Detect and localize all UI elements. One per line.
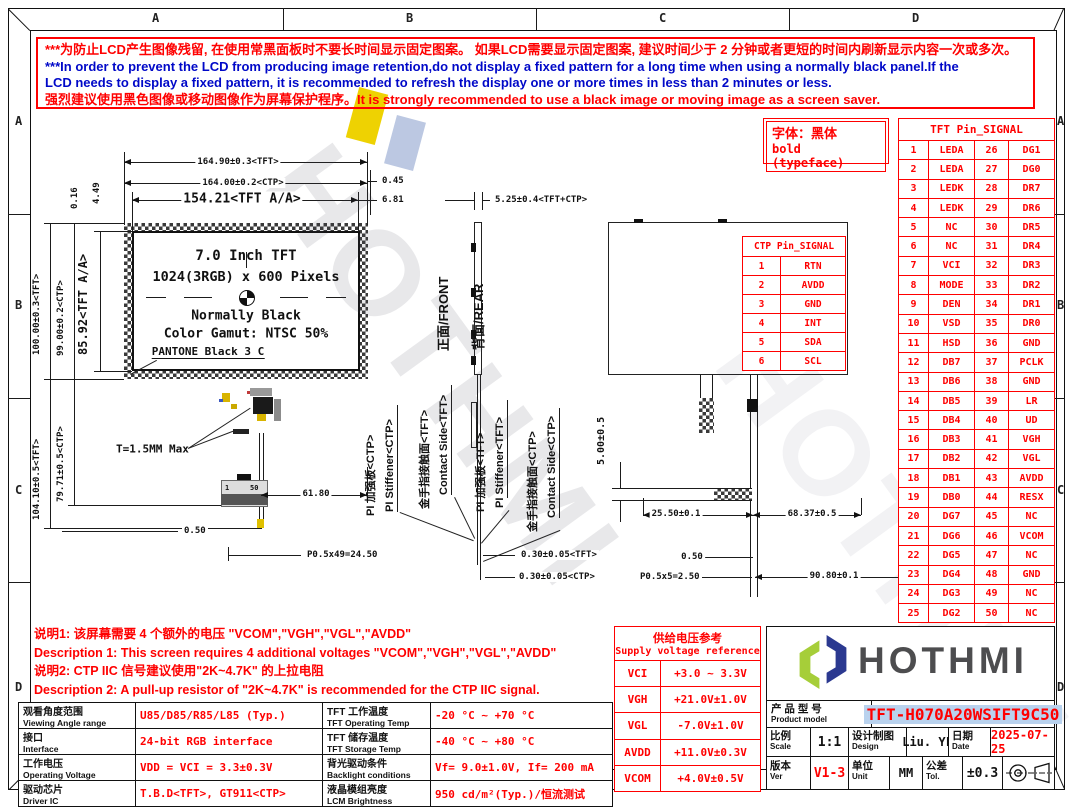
tft-pin-number: 48 [975, 565, 1009, 584]
tft-pin-number: 34 [975, 295, 1009, 314]
spec-value: -40 °C ~ +80 °C [431, 729, 613, 755]
tft-pin-row: 11 HSD 36 GND [899, 333, 1055, 352]
tft-pin-number: 15 [899, 411, 929, 430]
tft-pin-signal: DG7 [929, 507, 975, 526]
center-mark-icon [239, 290, 255, 306]
supply-table-header: 供给电压参考 Supply voltage reference [615, 627, 761, 661]
dim-offset-top1: 4.49 [92, 182, 102, 204]
tft-pin-number: 50 [975, 604, 1009, 623]
tft-pin-number: 22 [899, 546, 929, 565]
tft-pin-signal: GND [1009, 565, 1055, 584]
extension-line [68, 505, 224, 506]
tft-pin-number: 21 [899, 526, 929, 545]
scale-label-cell: 比例 Scale [766, 727, 811, 757]
callout-tft-stiffener-en: PI Stiffener<TFT> [494, 417, 506, 508]
spec-param-en: TFT Operating Temp [327, 718, 426, 728]
scale-value-cell: 1:1 [810, 727, 849, 757]
fpc-component [257, 414, 266, 421]
zone-row-a-left: A [15, 114, 22, 128]
spec-row: 工作电压 Operating Voltage VDD = VCI = 3.3±0… [19, 755, 613, 781]
tft-pin-number: 3 [899, 179, 929, 198]
zone-col-c-top: C [659, 11, 666, 25]
tft-pin-number: 12 [899, 353, 929, 372]
extension-line [44, 379, 124, 380]
tft-pin-row: 7 VCI 32 DR3 [899, 256, 1055, 275]
spec-param-cell: 液晶模组亮度 LCM Brightness [323, 781, 431, 807]
callout-ctp-stiffener-cn: PI 加强板<CTP> [362, 435, 378, 516]
tft-pin-signal: GND [1009, 333, 1055, 352]
tft-pin-number: 23 [899, 565, 929, 584]
supply-row: VGL -7.0V±1.0V [615, 713, 761, 739]
tolerance-value-cell: ±0.3 [962, 756, 1003, 790]
tft-pin-signal: UD [1009, 411, 1055, 430]
pantone-label: PANTONE Black 3 C [152, 345, 265, 359]
spec-param-cell: 接口 Interface [19, 729, 136, 755]
tft-pin-row: 8 MODE 33 DR2 [899, 276, 1055, 295]
tft-pin-number: 30 [975, 218, 1009, 237]
extension-line [44, 528, 262, 529]
spec-row: 驱动芯片 Driver IC T.B.D<TFT>, GT911<CTP> 液晶… [19, 781, 613, 807]
leader-line [705, 557, 753, 558]
typeface-note-cn: 字体：黑体 [772, 123, 880, 142]
tft-pin-number: 35 [975, 314, 1009, 333]
hothmi-brand-text: HOTHMI [858, 640, 1028, 682]
ctp-pin-row: 3 GND [743, 295, 846, 314]
dim-rear-pitch: P0.5x5=2.50 [638, 572, 702, 582]
fpc-tail-mark [257, 519, 264, 528]
note-1-en: Description 1: This screen requires 4 ad… [34, 644, 619, 663]
pin-1-label: 1 [225, 484, 229, 492]
tft-pin-row: 13 DB6 38 GND [899, 372, 1055, 391]
fpc-component [219, 399, 223, 402]
rear-view-nub [718, 219, 727, 223]
tft-pin-row: 16 DB3 41 VGH [899, 430, 1055, 449]
tft-pin-row: 6 NC 31 DR4 [899, 237, 1055, 256]
spec-param-cn: 背光驱动条件 [327, 755, 426, 770]
ctp-pin-row: 5 SDA [743, 333, 846, 352]
date-label-cell: 日期 Date [948, 727, 991, 757]
spec-param-cn: TFT 工作温度 [327, 703, 426, 718]
date-label-cn: 日期 [952, 730, 987, 742]
tolerance-label-cn: 公差 [926, 760, 959, 772]
tft-pin-number: 4 [899, 198, 929, 217]
tft-pin-number: 45 [975, 507, 1009, 526]
tft-pin-signal: DG3 [929, 584, 975, 603]
dim-rear-left: 25.50±0.1 [650, 509, 703, 519]
tft-pin-row: 5 NC 30 DR5 [899, 218, 1055, 237]
zone-col-d-top: D [912, 11, 919, 25]
spec-param-cn: 观看角度范围 [23, 703, 131, 718]
tft-pin-number: 47 [975, 546, 1009, 565]
dim-width-aa: 154.21<TFT A/A> [181, 192, 302, 207]
extension-line [228, 547, 229, 561]
tft-pin-signal: DR1 [1009, 295, 1055, 314]
tft-pin-row: 4 LEDK 29 DR6 [899, 198, 1055, 217]
tft-pin-number: 42 [975, 449, 1009, 468]
dim-stack-thickness: 5.25±0.4<TFT+CTP> [493, 195, 589, 205]
zone-row-b-left: B [15, 298, 22, 312]
spec-param-cell: 观看角度范围 Viewing Angle range [19, 703, 136, 729]
spec-param-cn: TFT 储存温度 [327, 729, 426, 744]
designer-value-cell: Liu. YL [906, 727, 949, 757]
spec-param-cell: 工作电压 Operating Voltage [19, 755, 136, 781]
extension-line [643, 498, 644, 515]
supply-title-en: Supply voltage reference [615, 646, 760, 657]
tft-pin-table-title: TFT Pin_SIGNAL [899, 119, 1055, 141]
tft-pin-number: 31 [975, 237, 1009, 256]
tolerance-label-cell: 公差 Tol. [922, 756, 963, 790]
tft-pin-signal: VGH [1009, 430, 1055, 449]
zone-col-a-top: A [152, 11, 159, 25]
dim-line-height-aa [100, 231, 101, 371]
dim-height-ctp: 99.00±0.2<CTP> [56, 280, 66, 356]
dim-offset-top2: 0.16 [70, 187, 80, 209]
spec-value: -20 °C ~ +70 °C [431, 703, 613, 729]
frame-tick [8, 214, 30, 215]
zone-col-b-top: B [406, 11, 413, 25]
tft-pin-signal: DG0 [1009, 160, 1055, 179]
spec-param-cell: TFT 储存温度 TFT Storage Temp [323, 729, 431, 755]
zone-row-d-right: D [1057, 680, 1064, 694]
tft-fpc-stiffener-bar [714, 488, 752, 500]
note-1-cn: 说明1: 该屏幕需要 4 个额外的电压 "VCOM","VGH","VGL","… [34, 625, 619, 644]
tft-pin-number: 26 [975, 141, 1009, 160]
tft-pin-signal: DB2 [929, 449, 975, 468]
tft-pin-row: 14 DB5 39 LR [899, 391, 1055, 410]
tft-pin-row: 2 LEDA 27 DG0 [899, 160, 1055, 179]
tft-pin-number: 49 [975, 584, 1009, 603]
tft-pin-signal: VCOM [1009, 526, 1055, 545]
supply-rail-value: +3.0 ~ 3.3V [661, 661, 761, 687]
tft-pin-number: 28 [975, 179, 1009, 198]
tft-pin-row: 20 DG7 45 NC [899, 507, 1055, 526]
description-notes: 说明1: 该屏幕需要 4 个额外的电压 "VCOM","VGH","VGL","… [34, 625, 619, 699]
dim-fpc-thickness-tft: 0.30±0.05<TFT> [519, 550, 599, 560]
spec-row: 接口 Interface 24-bit RGB interface TFT 储存… [19, 729, 613, 755]
tft-pin-row: 17 DB2 42 VGL [899, 449, 1055, 468]
dim-line [694, 577, 752, 578]
product-model-label-cn: 产 品 型 号 [771, 703, 867, 715]
panel-resolution-label: 1024(3RGB) x 600 Pixels [153, 269, 340, 285]
tft-pin-signal: HSD [929, 333, 975, 352]
thickness-label: T=1.5MM Max [114, 443, 191, 456]
tft-pin-number: 6 [899, 237, 929, 256]
tft-pin-signal: PCLK [1009, 353, 1055, 372]
supply-rail-value: +21.0V±1.0V [661, 687, 761, 713]
tft-pin-signal: DEN [929, 295, 975, 314]
tft-pin-signal: DR4 [1009, 237, 1055, 256]
tft-pin-number: 39 [975, 391, 1009, 410]
tft-pin-number: 25 [899, 604, 929, 623]
tft-pin-signal: DR2 [1009, 276, 1055, 295]
tft-pin-signal: NC [929, 237, 975, 256]
rear-view-nub [634, 219, 643, 223]
dim-fpc-length: 61.80 [300, 489, 331, 499]
fpc-component [250, 388, 272, 396]
spec-param-en: Operating Voltage [23, 770, 131, 780]
design-label-cell: 设计制图 Design [848, 727, 907, 757]
centerline-dash [184, 297, 212, 298]
extension-line [482, 192, 483, 210]
spec-param-cell: 驱动芯片 Driver IC [19, 781, 136, 807]
product-model-label-en: Product model [771, 715, 867, 724]
retention-warning-box: ***为防止LCD产生图像残留, 在使用常黑面板时不要长时间显示固定图案。 如果… [36, 37, 1035, 109]
tft-pin-number: 2 [899, 160, 929, 179]
dim-line [62, 531, 178, 532]
tft-pin-number: 10 [899, 314, 929, 333]
spec-value: Vf= 9.0±1.0V, If= 200 mA [431, 755, 613, 781]
tft-pin-signal: VSD [929, 314, 975, 333]
extension-line [94, 231, 132, 232]
tft-pin-signal: VCI [929, 256, 975, 275]
scale-label-cn: 比例 [770, 730, 807, 742]
tft-pin-number: 11 [899, 333, 929, 352]
fpc-component [231, 404, 237, 409]
extension-line [474, 192, 475, 210]
spec-param-cell: 背光驱动条件 Backlight conditions [323, 755, 431, 781]
callout-tft-stiffener-cn: PI 加强板<TFT> [472, 433, 488, 512]
dim-line-height-tft [50, 223, 51, 528]
dim-rear-gap: 5.00±0.5 [596, 417, 607, 465]
spec-param-cn: 液晶模组亮度 [327, 781, 426, 796]
unit-label-cell: 单位 Unit [848, 756, 890, 790]
supply-row: VCOM +4.0V±0.5V [615, 765, 761, 791]
scale-label-en: Scale [770, 742, 807, 751]
version-label-en: Ver [770, 772, 807, 781]
callout-ctp-stiffener-en: PI Stiffener<CTP> [384, 419, 396, 512]
date-value-cell: 2025-07-25 [990, 727, 1055, 757]
dim-line [228, 555, 301, 556]
tft-pin-signal: LEDK [929, 179, 975, 198]
tft-pin-row: 12 DB7 37 PCLK [899, 353, 1055, 372]
spec-param-cn: 工作电压 [23, 755, 131, 770]
callout-tft-contact-en: Contact Side<TFT> [438, 395, 450, 495]
datasheet-page: { "frame": {"cols": ["A","B","C","D"], "… [0, 0, 1073, 798]
tft-pin-number: 43 [975, 469, 1009, 488]
ctp-pin-signal: RTN [781, 257, 846, 276]
tft-pin-number: 13 [899, 372, 929, 391]
dim-line-height-ctp [74, 223, 75, 505]
spec-table: 观看角度范围 Viewing Angle range U85/D85/R85/L… [18, 702, 613, 807]
tft-pin-row: 24 DG3 49 NC [899, 584, 1055, 603]
tft-pin-signal: RESX [1009, 488, 1055, 507]
tft-pin-signal: DG5 [929, 546, 975, 565]
tft-pin-signal: DR3 [1009, 256, 1055, 275]
supply-rail-value: -7.0V±1.0V [661, 713, 761, 739]
tft-pin-signal: DB7 [929, 353, 975, 372]
tft-pin-signal: DG2 [929, 604, 975, 623]
version-value-cell: V1-3 [810, 756, 849, 790]
unit-label-en: Unit [852, 772, 886, 781]
callout-tft-contact-cn: 金手指接触面<TFT> [416, 410, 432, 509]
zone-row-a-right: A [1057, 114, 1064, 128]
panel-gamut-label: Color Gamut: NTSC 50% [164, 327, 328, 342]
dim-offset-right-aa: 6.81 [380, 195, 406, 205]
product-model-value: TFT-H070A20WSIFT9C50 [864, 705, 1063, 724]
ctp-pin-row: 2 AVDD [743, 276, 846, 295]
tft-pin-number: 17 [899, 449, 929, 468]
spec-value: T.B.D<TFT>, GT911<CTP> [136, 781, 323, 807]
warning-line-3: LCD needs to display a fixed pattern, it… [45, 75, 1026, 92]
spec-param-en: TFT Storage Temp [327, 744, 426, 754]
tft-pin-signal: VGL [1009, 449, 1055, 468]
tft-pin-number: 44 [975, 488, 1009, 507]
spec-param-en: Interface [23, 744, 131, 754]
dim-width-tft: 164.90±0.3<TFT> [195, 157, 280, 167]
tft-pin-row: 1 LEDA 26 DG1 [899, 141, 1055, 160]
tft-pin-row: 3 LEDK 28 DR7 [899, 179, 1055, 198]
typeface-note-en: bold (typeface) [772, 142, 880, 170]
note-2-cn: 说明2: CTP IIC 信号建议使用"2K~4.7K" 的上拉电阻 [34, 662, 619, 681]
unit-label-cn: 单位 [852, 760, 886, 772]
supply-row: AVDD +11.0V±0.3V [615, 739, 761, 765]
tft-pin-signal: DB3 [929, 430, 975, 449]
tft-pin-number: 20 [899, 507, 929, 526]
tft-pin-row: 19 DB0 44 RESX [899, 488, 1055, 507]
tft-pin-number: 46 [975, 526, 1009, 545]
tft-pin-number: 16 [899, 430, 929, 449]
tft-pin-signal: DR0 [1009, 314, 1055, 333]
ctp-pin-number: 2 [743, 276, 781, 295]
zone-row-c-right: C [1057, 483, 1064, 497]
dim-fpc-thickness-ctp: 0.30±0.05<CTP> [517, 572, 597, 582]
ctp-pin-number: 3 [743, 295, 781, 314]
tft-pin-row: 22 DG5 47 NC [899, 546, 1055, 565]
dim-rear-pin-start: 0.50 [679, 552, 705, 562]
ctp-pin-number: 5 [743, 333, 781, 352]
ctp-pin-signal: SCL [781, 352, 846, 371]
ctp-pin-signal: AVDD [781, 276, 846, 295]
ctp-pin-number: 6 [743, 352, 781, 371]
ctp-pin-number: 1 [743, 257, 781, 276]
hothmi-logo-mark [796, 630, 850, 694]
tft-pin-number: 32 [975, 256, 1009, 275]
dim-height-aa: 85.92<TFT A/A> [76, 254, 90, 355]
spec-param-cn: 接口 [23, 729, 131, 744]
ctp-pin-table-title: CTP Pin_SIGNAL [743, 237, 846, 257]
ctp-pin-row: 1 RTN [743, 257, 846, 276]
supply-rail-name: VGL [615, 713, 661, 739]
tft-pin-row: 15 DB4 40 UD [899, 411, 1055, 430]
tft-pin-number: 14 [899, 391, 929, 410]
tft-pin-signal: DR7 [1009, 179, 1055, 198]
tft-pin-row: 9 DEN 34 DR1 [899, 295, 1055, 314]
tft-pin-signal: LEDA [929, 141, 975, 160]
tft-pin-signal: MODE [929, 276, 975, 295]
tft-pin-signal: DR5 [1009, 218, 1055, 237]
dim-offset-right-ctp: 0.45 [380, 176, 406, 186]
design-label-en: Design [852, 742, 903, 751]
product-model-value-cell: TFT-H070A20WSIFT9C50 [871, 700, 1055, 728]
tft-pin-row: 10 VSD 35 DR0 [899, 314, 1055, 333]
date-label-en: Date [952, 742, 987, 751]
extension-line [612, 500, 752, 501]
panel-mode-label: Normally Black [191, 309, 301, 324]
tft-pin-signal: DG4 [929, 565, 975, 584]
tft-pin-signal: NC [929, 218, 975, 237]
tft-pin-signal: DB6 [929, 372, 975, 391]
spec-value: 950 cd/m²(Typ.)/恒流测试 [431, 781, 613, 807]
frame-tick [8, 398, 30, 399]
front-side-label: 正面/FRONT [433, 277, 452, 351]
warning-line-4: 强烈建议使用黑色图像或移动图像作为屏幕保护程序。It is strongly r… [45, 92, 1026, 109]
supply-row: VGH +21.0V±1.0V [615, 687, 761, 713]
tft-pin-signal: DB1 [929, 469, 975, 488]
tft-pin-number: 1 [899, 141, 929, 160]
warning-line-1: ***为防止LCD产生图像残留, 在使用常黑面板时不要长时间显示固定图案。 如果… [45, 42, 1026, 59]
dim-width-ctp: 164.00±0.2<CTP> [200, 178, 285, 188]
fpc-component [222, 393, 230, 402]
tft-pin-signal: NC [1009, 584, 1055, 603]
extension-line [44, 223, 124, 224]
tft-pin-number: 27 [975, 160, 1009, 179]
ctp-pin-signal: INT [781, 314, 846, 333]
tft-pin-row: 21 DG6 46 VCOM [899, 526, 1055, 545]
tft-pin-number: 41 [975, 430, 1009, 449]
dim-pitch-start-front: 0.50 [182, 526, 208, 536]
extension-line [94, 371, 132, 372]
supply-rail-name: VGH [615, 687, 661, 713]
tft-pin-row: 18 DB1 43 AVDD [899, 469, 1055, 488]
fpc-component [233, 429, 249, 434]
fpc-ic-chip [253, 397, 273, 414]
leader-line [485, 577, 515, 578]
rear-side-label: 背面/REAR [468, 284, 487, 350]
tft-pin-signal: LEDA [929, 160, 975, 179]
side-view-tab [471, 243, 476, 252]
frame-tick [789, 8, 790, 30]
unit-value-cell: MM [889, 756, 923, 790]
tft-pin-number: 7 [899, 256, 929, 275]
tft-pin-number: 19 [899, 488, 929, 507]
frame-tick [283, 8, 284, 30]
tft-pin-signal: DG1 [1009, 141, 1055, 160]
frame-tick [1055, 214, 1065, 215]
tft-pin-number: 9 [899, 295, 929, 314]
dim-line [482, 200, 490, 201]
panel-size-label: 7.0 Inch TFT [195, 248, 296, 264]
supply-rail-name: VCOM [615, 765, 661, 791]
ctp-pin-signal: GND [781, 295, 846, 314]
tft-pin-number: 36 [975, 333, 1009, 352]
tft-pin-number: 37 [975, 353, 1009, 372]
spec-value: 24-bit RGB interface [136, 729, 323, 755]
tft-pin-number: 40 [975, 411, 1009, 430]
tft-pin-row: 25 DG2 50 NC [899, 604, 1055, 623]
pin-50-label: 50 [250, 484, 258, 492]
spec-param-en: Backlight conditions [327, 770, 426, 780]
dim-line [445, 200, 474, 201]
spec-param-cell: TFT 工作温度 TFT Operating Temp [323, 703, 431, 729]
tft-pin-signal: AVDD [1009, 469, 1055, 488]
ctp-pin-row: 6 SCL [743, 352, 846, 371]
zone-row-d-left: D [15, 680, 22, 694]
dim-arrow-line [620, 462, 621, 488]
callout-ctp-contact-cn: 金手指接触面<CTP> [524, 431, 540, 532]
tft-pin-number: 8 [899, 276, 929, 295]
ctp-pin-signal: SDA [781, 333, 846, 352]
dim-height-fpc: 79.71±0.5<CTP> [56, 426, 66, 502]
zone-row-c-left: C [15, 483, 22, 497]
ctp-pin-table: CTP Pin_SIGNAL 1 RTN 2 AVDD 3 GND 4 INT [742, 236, 846, 371]
frame-tick [1055, 398, 1065, 399]
tft-pin-signal: NC [1009, 604, 1055, 623]
version-label-cn: 版本 [770, 760, 807, 772]
supply-rail-value: +11.0V±0.3V [661, 739, 761, 765]
version-label-cell: 版本 Ver [766, 756, 811, 790]
tft-pin-number: 33 [975, 276, 1009, 295]
tolerance-label-en: Tol. [926, 772, 959, 781]
